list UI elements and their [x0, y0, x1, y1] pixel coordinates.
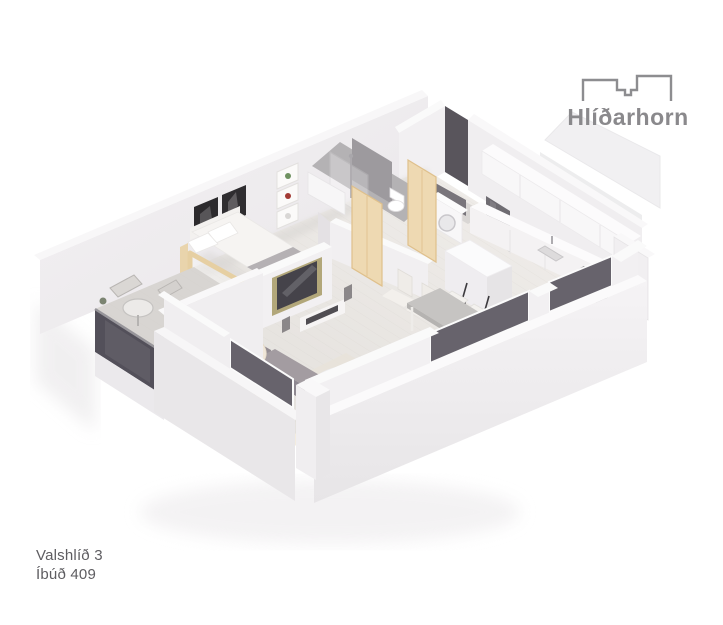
- washer-door: [439, 215, 455, 231]
- apartment-number: Íbúð 409: [36, 565, 103, 584]
- plant-deco: [285, 173, 291, 179]
- brand-logo: Hlíðarhorn: [553, 72, 703, 129]
- corner-face-right: [316, 390, 330, 480]
- balcony-table: [123, 299, 153, 317]
- corner-face-left: [296, 385, 316, 480]
- address-caption: Valshlíð 3 Íbúð 409: [36, 546, 103, 584]
- balcony-plant: [100, 298, 107, 305]
- street-address: Valshlíð 3: [36, 546, 103, 565]
- brand-name: Hlíðarhorn: [553, 106, 703, 129]
- red-deco: [285, 193, 291, 199]
- entry-door-opening: [445, 106, 468, 186]
- vase-deco: [285, 213, 291, 219]
- building-outline-icon: [580, 72, 676, 104]
- corner-block-south: [296, 378, 330, 480]
- bedroom-wall-shelves: [277, 163, 298, 229]
- toilet-bowl: [388, 201, 404, 212]
- shower-head: [349, 154, 353, 158]
